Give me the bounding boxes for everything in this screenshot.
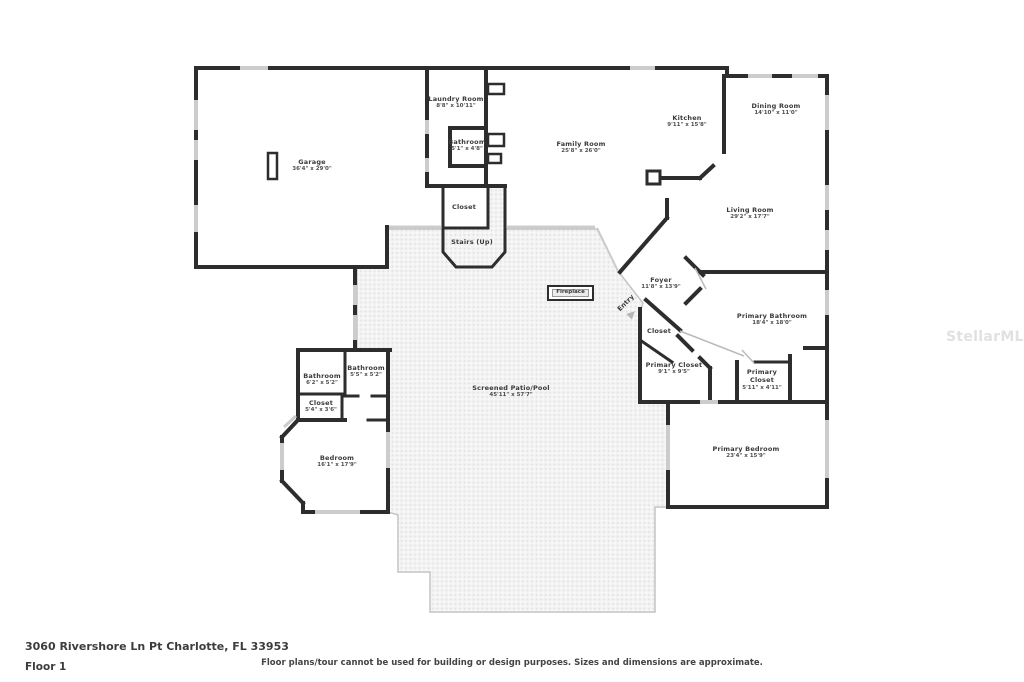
garage-door-icon: [268, 153, 277, 179]
room-label-kitchen: Kitchen 9'11" x 15'8": [667, 114, 706, 130]
fireplace-inner: Fireplace: [552, 289, 589, 297]
disclaimer-text: Floor plans/tour cannot be used for buil…: [0, 658, 1024, 668]
room-label-primary-bathroom: Primary Bathroom 18'4" x 18'0": [737, 312, 807, 328]
floorplan-page: Garage 36'4" x 29'0" Laundry Room 8'8" x…: [0, 0, 1024, 682]
room-label-bathroom-right: Bathroom 5'5" x 5'2": [347, 364, 385, 380]
room-label-bathroom-left: Bathroom 6'2" x 5'2": [303, 372, 341, 388]
room-label-bedroom-closet: Closet 5'4" x 3'6": [305, 399, 337, 415]
room-label-stairs-closet: Closet: [452, 203, 476, 211]
room-label-family: Family Room 25'8" x 26'0": [556, 140, 605, 156]
room-label-bathroom-hall: Bathroom 5'1" x 4'8": [448, 138, 486, 154]
room-label-dining: Dining Room 14'10" x 11'0": [752, 102, 801, 118]
room-label-foyer: Foyer 11'8" x 13'9": [641, 276, 680, 292]
room-label-stairs: Stairs (Up): [451, 238, 493, 246]
room-label-foyer-closet: Closet: [647, 327, 671, 335]
address-text: 3060 Rivershore Ln Pt Charlotte, FL 3395…: [25, 640, 289, 653]
fireplace-box: Fireplace: [547, 285, 594, 301]
patio-region: [357, 229, 668, 612]
room-label-laundry: Laundry Room 8'8" x 10'11": [428, 95, 483, 111]
laundry-fixtures-icon: [488, 84, 504, 163]
room-label-primary-closet-2: Primary Closet 5'11" x 4'11": [742, 368, 781, 392]
room-label-bedroom: Bedroom 16'1" x 17'9": [317, 454, 356, 470]
floorplan-drawing: [0, 0, 1024, 682]
room-label-primary-bedroom: Primary Bedroom 23'4" x 15'9": [713, 445, 780, 461]
fireplace-label: Fireplace: [556, 290, 585, 296]
room-label-patio: Screened Patio/Pool 45'11" x 57'7": [472, 384, 549, 400]
watermark: StellarMLS: [946, 329, 1024, 345]
room-label-primary-closet: Primary Closet 9'1" x 9'5": [646, 361, 703, 377]
room-label-living: Living Room 29'2" x 17'7": [726, 206, 773, 222]
room-label-garage: Garage 36'4" x 29'0": [292, 158, 331, 174]
